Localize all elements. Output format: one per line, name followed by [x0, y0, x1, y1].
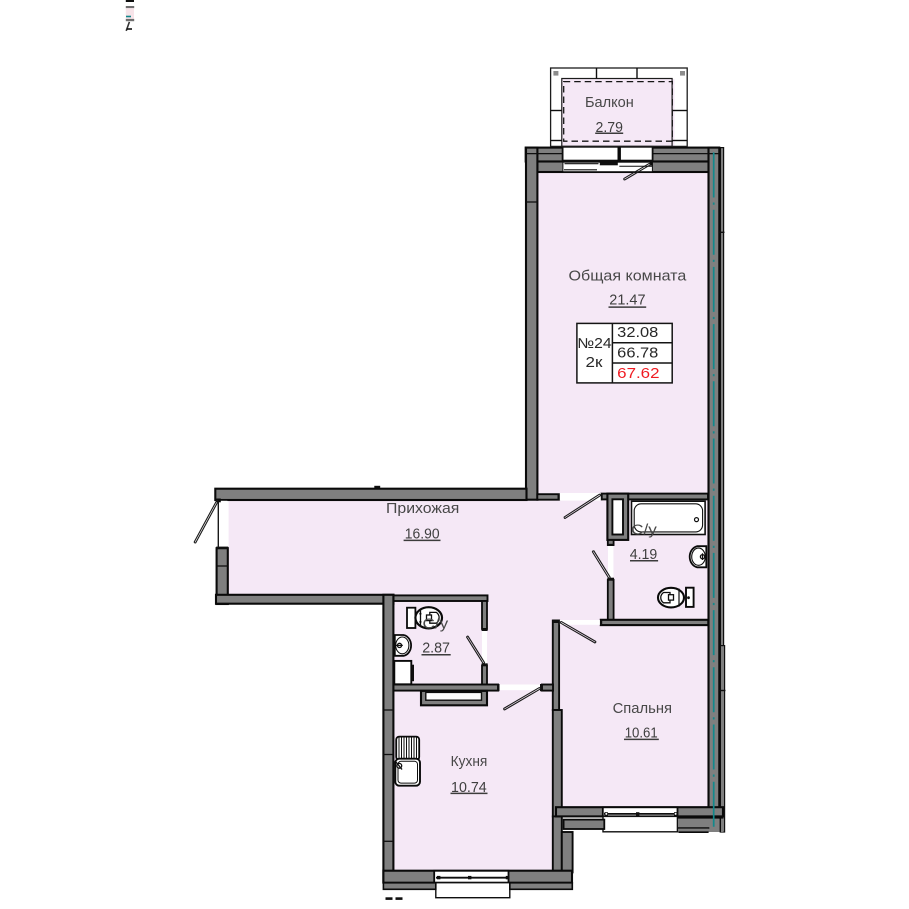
svg-text:Прихожая: Прихожая	[386, 501, 459, 517]
svg-text:№24: №24	[577, 336, 611, 352]
svg-text:С/у: С/у	[631, 522, 657, 538]
svg-text:2.87: 2.87	[422, 640, 450, 656]
svg-text:32.08: 32.08	[617, 325, 658, 341]
svg-text:Общая комната: Общая комната	[569, 269, 688, 285]
svg-text:С/у: С/у	[423, 617, 449, 633]
svg-text:21.47: 21.47	[609, 293, 645, 309]
svg-text:66.78: 66.78	[617, 346, 658, 362]
svg-text:Балкон: Балкон	[585, 95, 634, 111]
svg-text:Кухня: Кухня	[451, 754, 488, 770]
svg-text:67.62: 67.62	[617, 366, 659, 382]
svg-text:2к: 2к	[586, 355, 604, 371]
svg-text:Спальня: Спальня	[613, 701, 672, 717]
